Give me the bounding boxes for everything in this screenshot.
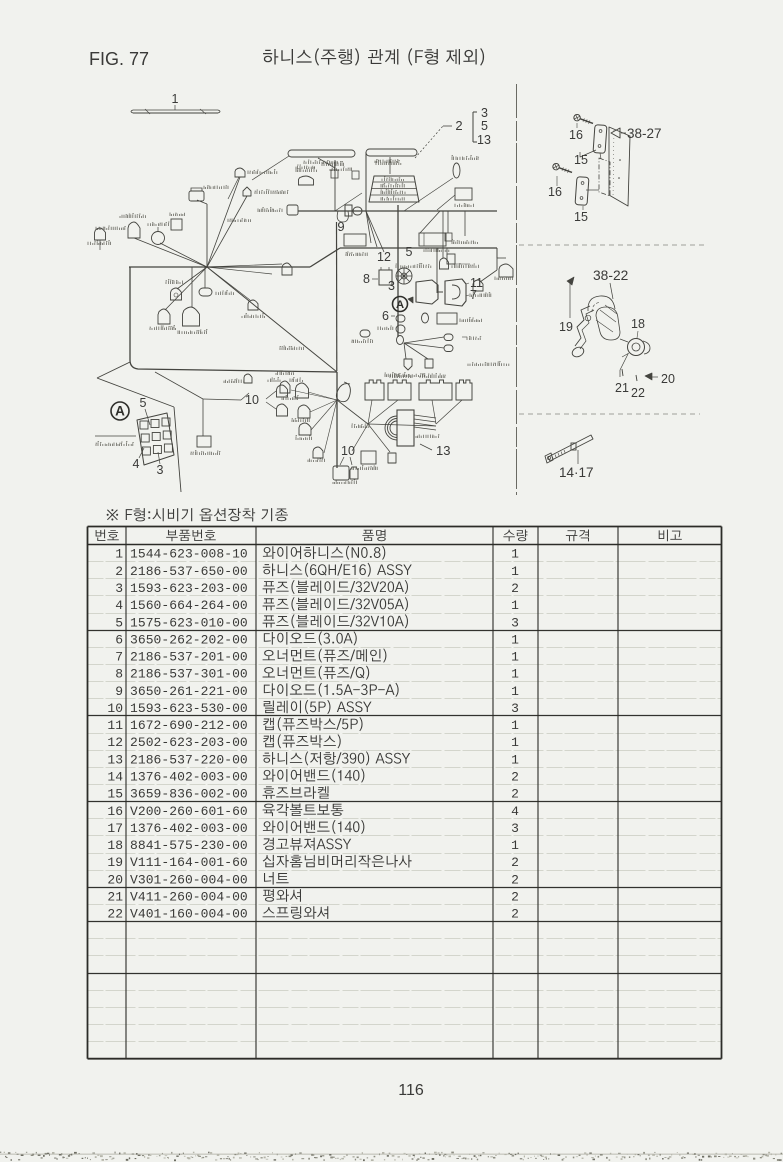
svg-text:3659-836-002-00: 3659-836-002-00 bbox=[130, 787, 248, 802]
svg-text:6: 6 bbox=[382, 309, 389, 323]
svg-text:3: 3 bbox=[511, 615, 519, 630]
svg-text:15: 15 bbox=[574, 210, 588, 224]
svg-text:19: 19 bbox=[107, 855, 123, 870]
svg-text:13: 13 bbox=[107, 752, 123, 767]
svg-text:1: 1 bbox=[511, 718, 519, 733]
svg-text:1593-623-203-00: 1593-623-203-00 bbox=[130, 581, 248, 596]
svg-text:8: 8 bbox=[115, 667, 123, 682]
svg-text:2186-537-301-00: 2186-537-301-00 bbox=[130, 667, 248, 682]
svg-text:10: 10 bbox=[107, 701, 123, 716]
svg-text:V301-260-004-00: V301-260-004-00 bbox=[130, 872, 248, 887]
svg-text:15: 15 bbox=[107, 787, 123, 802]
svg-text:21: 21 bbox=[615, 381, 629, 395]
svg-text:1: 1 bbox=[511, 650, 519, 665]
svg-text:5: 5 bbox=[140, 396, 147, 410]
svg-text:3: 3 bbox=[115, 581, 123, 596]
svg-text:12: 12 bbox=[377, 250, 391, 264]
svg-text:V401-160-004-00: V401-160-004-00 bbox=[130, 907, 248, 922]
svg-text:8: 8 bbox=[363, 272, 370, 286]
svg-text:1: 1 bbox=[511, 684, 519, 699]
svg-text:3: 3 bbox=[511, 701, 519, 716]
svg-text:1593-623-530-00: 1593-623-530-00 bbox=[130, 701, 248, 716]
svg-text:1376-402-003-00: 1376-402-003-00 bbox=[130, 770, 248, 785]
svg-text:2: 2 bbox=[455, 118, 462, 133]
svg-text:3: 3 bbox=[388, 279, 395, 293]
svg-text:5: 5 bbox=[481, 119, 488, 133]
svg-text:16: 16 bbox=[107, 804, 123, 819]
svg-text:19: 19 bbox=[559, 320, 573, 334]
svg-text:1560-664-264-00: 1560-664-264-00 bbox=[130, 598, 248, 613]
svg-text:18: 18 bbox=[631, 317, 645, 331]
svg-text:38-27: 38-27 bbox=[627, 126, 662, 141]
svg-text:1672-690-212-00: 1672-690-212-00 bbox=[130, 718, 248, 733]
svg-text:2186-537-650-00: 2186-537-650-00 bbox=[130, 564, 248, 579]
svg-text:2186-537-201-00: 2186-537-201-00 bbox=[130, 650, 248, 665]
svg-text:38-22: 38-22 bbox=[593, 268, 628, 283]
svg-text:21: 21 bbox=[107, 890, 123, 905]
svg-text:14: 14 bbox=[107, 770, 123, 785]
svg-text:3: 3 bbox=[511, 821, 519, 836]
svg-text:V200-260-601-60: V200-260-601-60 bbox=[130, 804, 248, 819]
svg-text:2: 2 bbox=[511, 787, 519, 802]
svg-text:11: 11 bbox=[107, 718, 123, 733]
svg-text:1376-402-003-00: 1376-402-003-00 bbox=[130, 821, 248, 836]
svg-text:4: 4 bbox=[511, 804, 519, 819]
svg-text:2: 2 bbox=[511, 890, 519, 905]
svg-text:1: 1 bbox=[172, 92, 179, 106]
svg-text:7: 7 bbox=[115, 650, 123, 665]
svg-text:8841-575-230-00: 8841-575-230-00 bbox=[130, 838, 248, 853]
svg-text:13: 13 bbox=[477, 133, 491, 147]
svg-text:1: 1 bbox=[511, 598, 519, 613]
svg-text:2502-623-203-00: 2502-623-203-00 bbox=[130, 735, 248, 750]
svg-text:1: 1 bbox=[511, 564, 519, 579]
svg-text:1: 1 bbox=[511, 838, 519, 853]
svg-text:V111-164-001-60: V111-164-001-60 bbox=[130, 855, 248, 870]
svg-text:2: 2 bbox=[511, 872, 519, 887]
svg-text:1: 1 bbox=[511, 547, 519, 562]
svg-text:4: 4 bbox=[115, 598, 123, 613]
svg-text:10: 10 bbox=[341, 444, 355, 458]
svg-text:22: 22 bbox=[107, 907, 123, 922]
svg-text:17: 17 bbox=[107, 821, 123, 836]
svg-text:3: 3 bbox=[481, 106, 488, 120]
svg-text:2186-537-220-00: 2186-537-220-00 bbox=[130, 752, 248, 767]
svg-text:V411-260-004-00: V411-260-004-00 bbox=[130, 890, 248, 905]
svg-text:9: 9 bbox=[115, 684, 123, 699]
svg-text:A: A bbox=[115, 404, 125, 419]
svg-text:1: 1 bbox=[115, 547, 123, 562]
svg-text:A: A bbox=[396, 299, 404, 311]
svg-text:1575-623-010-00: 1575-623-010-00 bbox=[130, 615, 248, 630]
svg-text:13: 13 bbox=[436, 443, 450, 458]
svg-text:18: 18 bbox=[107, 838, 123, 853]
svg-text:15: 15 bbox=[574, 153, 588, 167]
svg-text:1: 1 bbox=[511, 752, 519, 767]
svg-text:9: 9 bbox=[337, 219, 344, 234]
svg-text:1: 1 bbox=[511, 632, 519, 647]
svg-text:16: 16 bbox=[569, 128, 583, 142]
svg-text:FIG. 77: FIG. 77 bbox=[89, 49, 149, 69]
svg-text:2: 2 bbox=[511, 907, 519, 922]
svg-text:3650-262-202-00: 3650-262-202-00 bbox=[130, 632, 248, 647]
svg-text:20: 20 bbox=[107, 872, 123, 887]
svg-text:5: 5 bbox=[406, 245, 413, 259]
svg-text:20: 20 bbox=[661, 372, 675, 386]
svg-text:10: 10 bbox=[245, 393, 259, 407]
svg-text:16: 16 bbox=[548, 185, 562, 199]
svg-text:6: 6 bbox=[115, 632, 123, 647]
svg-text:3650-261-221-00: 3650-261-221-00 bbox=[130, 684, 248, 699]
svg-text:14·17: 14·17 bbox=[559, 465, 594, 480]
svg-text:2: 2 bbox=[511, 855, 519, 870]
svg-text:5: 5 bbox=[115, 615, 123, 630]
svg-text:4: 4 bbox=[133, 457, 140, 471]
svg-text:2: 2 bbox=[511, 770, 519, 785]
svg-text:1: 1 bbox=[511, 735, 519, 750]
svg-text:22: 22 bbox=[631, 386, 645, 400]
svg-text:2: 2 bbox=[115, 564, 123, 579]
svg-text:2: 2 bbox=[511, 581, 519, 596]
svg-text:1544-623-008-10: 1544-623-008-10 bbox=[130, 547, 248, 562]
svg-text:3: 3 bbox=[157, 463, 164, 477]
svg-text:12: 12 bbox=[107, 735, 123, 750]
svg-text:1: 1 bbox=[511, 667, 519, 682]
svg-text:116: 116 bbox=[398, 1082, 424, 1099]
